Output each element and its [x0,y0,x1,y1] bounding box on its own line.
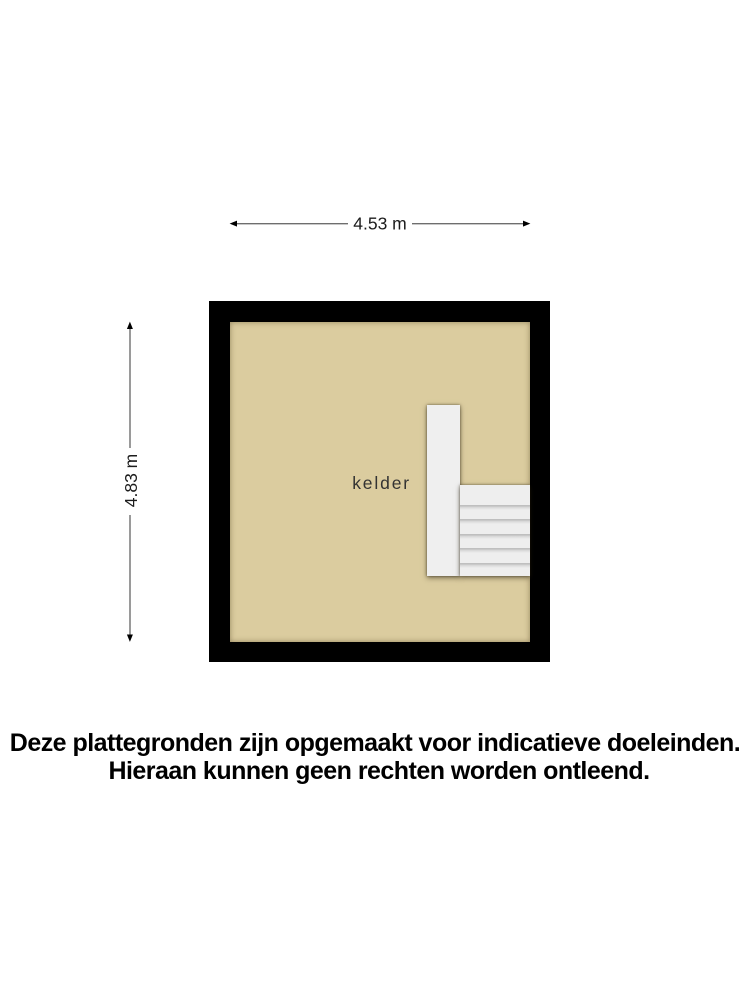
svg-text:4.53 m: 4.53 m [353,214,407,234]
svg-text:4.83 m: 4.83 m [121,454,141,508]
